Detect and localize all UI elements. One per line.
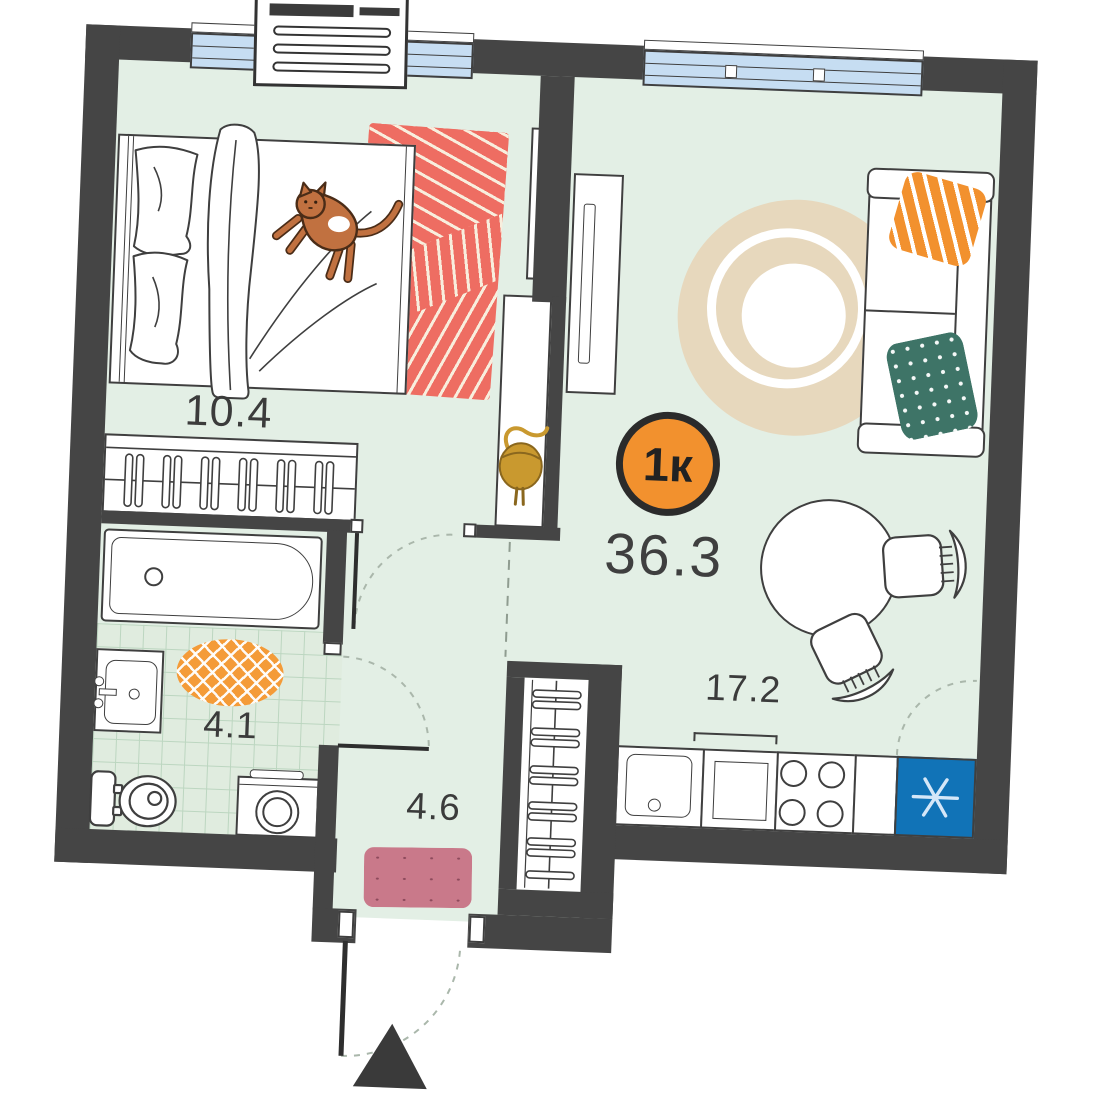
badge-label: 1к — [642, 435, 694, 492]
entrance-arrow-icon — [353, 1022, 429, 1089]
living-area-label: 17.2 — [683, 666, 805, 713]
bed-linens — [126, 121, 382, 404]
bedroom-area-label: 10.4 — [153, 385, 305, 440]
apartment-floorplan: 1к 36.3 10.4 17.2 4.1 4.6 — [0, 0, 1093, 1093]
bathroom-area-label: 4.1 — [180, 702, 282, 748]
hallway-area-label: 4.6 — [383, 784, 485, 830]
floorplan-canvas: 1к 36.3 10.4 17.2 4.1 4.6 — [0, 0, 1093, 1093]
toilet-icon — [90, 771, 177, 828]
plan-overlay — [0, 0, 1093, 1093]
cat-icon — [275, 181, 400, 281]
chair-icon — [803, 608, 899, 711]
total-area-label: 36.3 — [603, 521, 765, 593]
handbag-icon — [498, 426, 547, 505]
chair-icon — [882, 530, 968, 602]
